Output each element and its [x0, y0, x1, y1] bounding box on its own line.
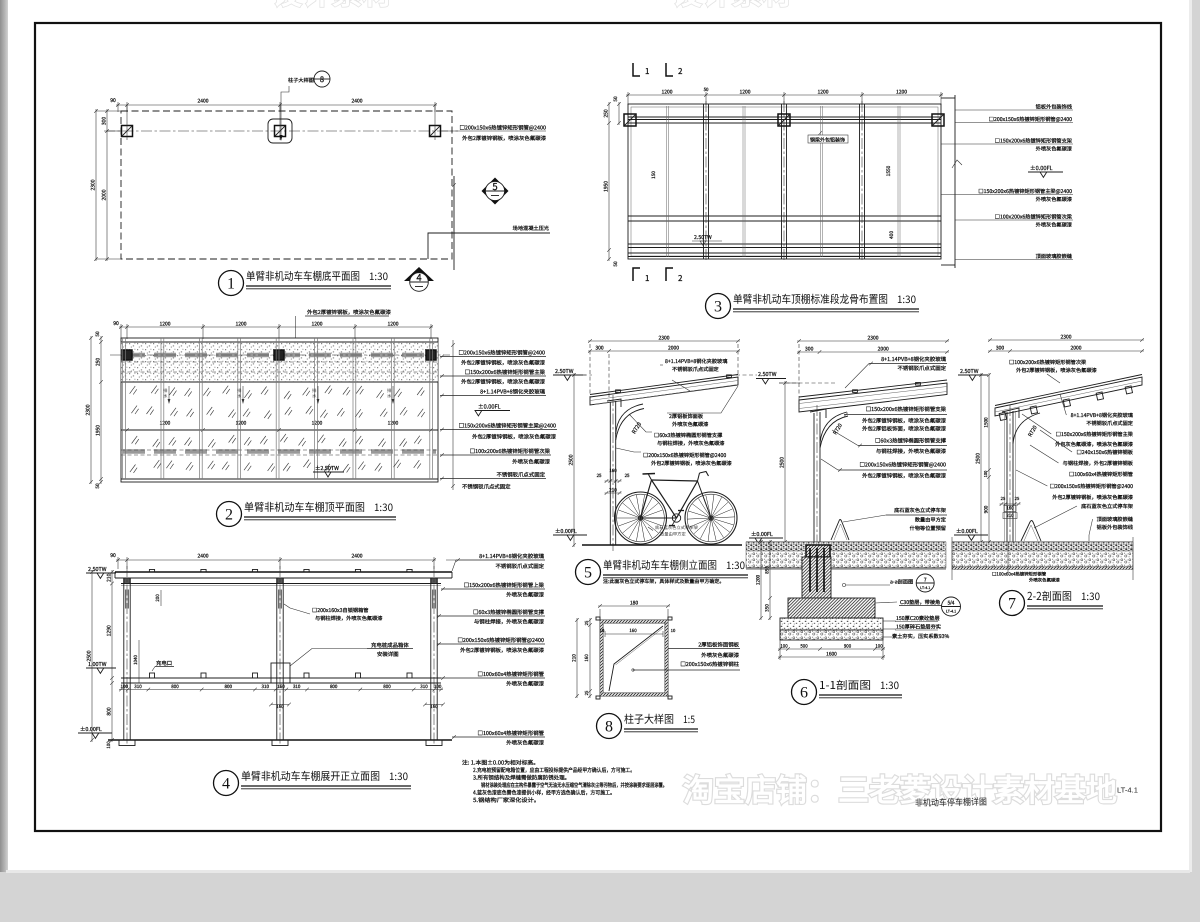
svg-text:800: 800 — [225, 684, 233, 690]
svg-text:充电桩成品箱体: 充电桩成品箱体 — [371, 641, 409, 649]
svg-text:2400: 2400 — [351, 98, 362, 105]
svg-text:25: 25 — [584, 620, 590, 625]
svg-text:7: 7 — [924, 577, 927, 584]
svg-text:外包2厚镀锌钢板，喷涂灰色氟碳漆: 外包2厚镀锌钢板，喷涂灰色氟碳漆 — [1052, 494, 1133, 501]
svg-text:310: 310 — [293, 684, 301, 690]
svg-text:2300: 2300 — [84, 404, 91, 415]
svg-text:310: 310 — [420, 684, 428, 690]
svg-text:外喷灰色氟碳漆: 外喷灰色氟碳漆 — [506, 739, 544, 747]
svg-text:50: 50 — [613, 96, 619, 102]
svg-text:不锈钢驳爪点式固定: 不锈钢驳爪点式固定 — [672, 366, 719, 373]
svg-text:210: 210 — [105, 573, 112, 582]
svg-text:1950: 1950 — [94, 425, 101, 436]
svg-text:单臂非机动车车棚顶平面图: 单臂非机动车车棚顶平面图 — [244, 499, 365, 515]
svg-text:外包2厚镀锌钢板，喷涂灰色氟碳漆: 外包2厚镀锌钢板，喷涂灰色氟碳漆 — [462, 134, 546, 142]
svg-text:160: 160 — [430, 704, 438, 710]
svg-text:□150x200x6热镀锌矩形钢管主梁@2400: □150x200x6热镀锌矩形钢管主梁@2400 — [459, 422, 556, 430]
svg-text:3: 3 — [714, 299, 722, 316]
svg-text:1: 1 — [645, 66, 649, 77]
svg-text:□200x160x3自锁钢箱管: □200x160x3自锁钢箱管 — [312, 607, 368, 614]
svg-text:1200: 1200 — [739, 88, 750, 95]
svg-text:1:30: 1:30 — [389, 768, 408, 783]
svg-text:非机动车停车棚详图: 非机动车停车棚详图 — [915, 795, 987, 809]
svg-text:2000: 2000 — [878, 345, 889, 352]
svg-text:□150x200x6热镀锌矩形钢管支架: □150x200x6热镀锌矩形钢管支架 — [995, 138, 1072, 145]
svg-text:不锈钢驳爪点式固定: 不锈钢驳爪点式固定 — [1086, 420, 1133, 427]
svg-text:与钢柱焊接，外喷灰色氟碳漆: 与钢柱焊接，外喷灰色氟碳漆 — [315, 615, 382, 622]
svg-text:150厚碎石垫层夯实: 150厚碎石垫层夯实 — [896, 624, 941, 631]
svg-text:1200: 1200 — [388, 420, 399, 427]
svg-text:柱子大样图: 柱子大样图 — [288, 77, 314, 84]
svg-text:2000: 2000 — [1070, 344, 1081, 351]
svg-text:1550: 1550 — [885, 165, 892, 176]
svg-text:外喷灰色氟碳漆: 外喷灰色氟碳漆 — [506, 591, 544, 599]
svg-text:25: 25 — [1015, 496, 1020, 502]
svg-text:160: 160 — [276, 704, 284, 710]
svg-text:□100x60x4热镀锌矩形钢管: □100x60x4热镀锌矩形钢管 — [478, 670, 545, 678]
svg-text:不锈钢驳爪点式固定: 不锈钢驳爪点式固定 — [496, 471, 545, 479]
svg-text:□150x200x6热镀锌矩形钢管主梁: □150x200x6热镀锌矩形钢管主梁 — [465, 368, 546, 376]
svg-text:2厚铝板饰面板: 2厚铝板饰面板 — [669, 413, 704, 420]
svg-text:2: 2 — [678, 66, 683, 77]
svg-text:180: 180 — [630, 599, 639, 606]
svg-text:外喷灰色氟碳漆: 外喷灰色氟碳漆 — [672, 421, 708, 428]
svg-text:单臂非机动车顶棚标准段龙骨布置图: 单臂非机动车顶棚标准段龙骨布置图 — [733, 291, 888, 307]
svg-text:□60x3热镀锌椭圆形钢管支撑: □60x3热镀锌椭圆形钢管支撑 — [473, 608, 545, 616]
svg-text:LT-4.1: LT-4.1 — [1117, 786, 1138, 795]
svg-text:150: 150 — [651, 171, 657, 179]
svg-text:数量由甲方定: 数量由甲方定 — [915, 517, 946, 524]
svg-text:不锈钢驳爪点式固定: 不锈钢驳爪点式固定 — [897, 364, 946, 372]
svg-text:6: 6 — [800, 685, 808, 702]
svg-text:与钢柱焊接，外喷灰色氟碳漆: 与钢柱焊接，外喷灰色氟碳漆 — [876, 447, 947, 455]
svg-text:2400: 2400 — [351, 553, 362, 560]
svg-text:5: 5 — [584, 565, 592, 582]
svg-text:外包2厚镀锌钢板，喷涂灰色氟碳漆: 外包2厚镀锌钢板，喷涂灰色氟碳漆 — [461, 378, 545, 386]
svg-text:1200: 1200 — [896, 88, 907, 95]
svg-text:淘宝店铺：三老菱设计素材基地: 淘宝店铺：三老菱设计素材基地 — [683, 765, 1117, 810]
svg-text:2500: 2500 — [85, 650, 92, 661]
svg-text:外包2厚镀锌钢板，喷涂灰色氟碳漆: 外包2厚镀锌钢板，喷涂灰色氟碳漆 — [461, 359, 545, 367]
svg-text:±0.00FL: ±0.00FL — [80, 725, 102, 733]
svg-text:外包2厚镀锌钢板，喷涂灰色氟碳漆: 外包2厚镀锌钢板，喷涂灰色氟碳漆 — [472, 433, 556, 441]
svg-text:1200: 1200 — [159, 320, 170, 327]
svg-text:外包灰色氟碳漆，喷涂灰色氟碳漆: 外包灰色氟碳漆，喷涂灰色氟碳漆 — [1055, 441, 1133, 448]
svg-text:1200: 1200 — [236, 420, 247, 427]
svg-text:800: 800 — [171, 684, 179, 690]
svg-text:2500: 2500 — [778, 457, 785, 468]
svg-text:□200x150x6热镀锌矩形钢管@2400: □200x150x6热镀锌矩形钢管@2400 — [458, 349, 545, 357]
svg-text:□150x200x6热镀锌矩形钢管上梁: □150x200x6热镀锌矩形钢管上梁 — [464, 581, 545, 589]
svg-text:8+1.14PVB+8钢化夹胶玻璃: 8+1.14PVB+8钢化夹胶玻璃 — [1071, 412, 1133, 419]
svg-text:与钢柱焊接，外喷灰色氟碳漆: 与钢柱焊接，外喷灰色氟碳漆 — [474, 618, 545, 626]
svg-text:25: 25 — [1001, 496, 1006, 502]
svg-text:1:30: 1:30 — [726, 557, 745, 572]
svg-text:□100x60x4热镀锌矩形钢管: □100x60x4热镀锌矩形钢管 — [1069, 471, 1133, 478]
svg-text:±0.00FL: ±0.00FL — [751, 530, 773, 538]
svg-text:底石蓝灰色立式停车架: 底石蓝灰色立式停车架 — [894, 507, 946, 514]
svg-text:C30垫层，带棱角: C30垫层，带棱角 — [900, 599, 940, 606]
svg-text:1500: 1500 — [983, 417, 989, 428]
svg-text:1200: 1200 — [817, 88, 828, 95]
svg-text:2.50TW: 2.50TW — [555, 367, 574, 375]
svg-text:□60x3热镀锌椭圆形钢管支撑: □60x3热镀锌椭圆形钢管支撑 — [654, 432, 722, 439]
svg-text:2500: 2500 — [974, 453, 981, 464]
svg-text:1:30: 1:30 — [369, 268, 388, 283]
svg-text:25: 25 — [584, 690, 590, 695]
svg-text:1:30: 1:30 — [374, 499, 393, 514]
svg-text:不锈钢驳爪点式固定: 不锈钢驳爪点式固定 — [495, 562, 544, 570]
svg-text:900: 900 — [844, 643, 852, 649]
svg-text:2.50TW: 2.50TW — [88, 565, 107, 573]
svg-text:外喷灰色氟碳漆: 外喷灰色氟碳漆 — [1036, 222, 1072, 229]
svg-text:210: 210 — [1006, 513, 1014, 519]
svg-text:±2.50TW: ±2.50TW — [315, 464, 339, 472]
svg-text:100: 100 — [121, 684, 129, 690]
svg-text:5/4: 5/4 — [948, 600, 955, 607]
svg-text:1600: 1600 — [826, 650, 837, 657]
svg-text:300: 300 — [805, 345, 814, 352]
svg-text:210: 210 — [571, 654, 577, 662]
svg-text:□200x150x6热镀锌矩形钢管@2400: □200x150x6热镀锌矩形钢管@2400 — [859, 461, 946, 469]
svg-text:50: 50 — [704, 87, 709, 93]
svg-text:铝板外包装饰线: 铝板外包装饰线 — [1036, 104, 1072, 111]
svg-text:100: 100 — [983, 470, 989, 477]
svg-text:LT-4.1: LT-4.1 — [920, 586, 930, 591]
svg-text:外喷灰色氟碳漆: 外喷灰色氟碳漆 — [506, 680, 544, 688]
svg-text:柱子大样图: 柱子大样图 — [624, 711, 674, 727]
svg-text:外包2厚镀锌钢板，喷涂灰色氟碳漆: 外包2厚镀锌钢板，喷涂灰色氟碳漆 — [1016, 367, 1097, 374]
svg-text:1:30: 1:30 — [1081, 588, 1100, 603]
svg-text:1:30: 1:30 — [880, 677, 899, 692]
svg-text:200: 200 — [155, 594, 161, 602]
svg-text:±0.00FL: ±0.00FL — [956, 527, 978, 535]
svg-text:2500: 2500 — [567, 454, 574, 465]
svg-text:1:30: 1:30 — [897, 291, 916, 306]
svg-text:160: 160 — [277, 684, 285, 690]
svg-text:充电口: 充电口 — [156, 659, 172, 667]
svg-text:250: 250 — [94, 358, 101, 367]
svg-text:单臂非机动车车棚侧立面图: 单臂非机动车车棚侧立面图 — [603, 557, 717, 573]
svg-text:2000: 2000 — [100, 189, 107, 200]
svg-text:□150x200x6热镀锌矩形钢管主梁@2400: □150x200x6热镀锌矩形钢管主梁@2400 — [978, 188, 1072, 195]
svg-text:50: 50 — [95, 483, 101, 489]
svg-text:90: 90 — [110, 552, 116, 559]
svg-text:50: 50 — [95, 331, 101, 337]
svg-text:90: 90 — [110, 97, 116, 104]
svg-text:2.50TW: 2.50TW — [960, 367, 979, 375]
svg-text:与钢柱焊接，外喷灰色氟碳漆: 与钢柱焊接，外喷灰色氟碳漆 — [657, 440, 724, 447]
svg-text:100: 100 — [780, 643, 788, 649]
svg-text:a-a剖面图: a-a剖面图 — [890, 579, 913, 586]
svg-text:300: 300 — [595, 344, 604, 351]
svg-text:1:5: 1:5 — [683, 711, 695, 726]
svg-text:1290: 1290 — [105, 625, 112, 636]
svg-text:800: 800 — [330, 684, 338, 690]
svg-text:注:此面灰色立式停车架，具体样式及数量由甲方确定。: 注:此面灰色立式停车架，具体样式及数量由甲方确定。 — [603, 578, 724, 585]
svg-text:□240x150x6热镀锌钢板: □240x150x6热镀锌钢板 — [1077, 449, 1134, 456]
svg-text:2400: 2400 — [197, 98, 208, 105]
svg-text:±0.00FL: ±0.00FL — [555, 527, 577, 535]
svg-text:单臂非机动车车棚底平面图: 单臂非机动车车棚底平面图 — [246, 268, 360, 284]
svg-text:25: 25 — [597, 473, 602, 479]
svg-text:1200: 1200 — [387, 320, 398, 327]
svg-text:900: 900 — [983, 505, 989, 513]
svg-text:设计素材: 设计素材 — [272, 0, 392, 13]
svg-text:310: 310 — [262, 684, 270, 690]
svg-text:210: 210 — [609, 487, 617, 493]
svg-text:350: 350 — [764, 604, 770, 612]
svg-text:水: 水 — [387, 394, 392, 400]
svg-text:铝板外包装饰线: 铝板外包装饰线 — [1097, 524, 1133, 531]
svg-text:400: 400 — [888, 231, 895, 239]
svg-text:1040: 1040 — [133, 655, 139, 665]
svg-text:□200x150x6热镀锌矩形钢管@2400: □200x150x6热镀锌矩形钢管@2400 — [989, 116, 1072, 123]
svg-text:水: 水 — [237, 394, 242, 400]
svg-text:300: 300 — [100, 117, 107, 126]
svg-text:7: 7 — [1008, 596, 1016, 613]
svg-text:1-1剖面图: 1-1剖面图 — [819, 677, 871, 693]
svg-text:300: 300 — [996, 344, 1005, 351]
svg-text:160: 160 — [609, 468, 617, 474]
svg-text:水: 水 — [312, 394, 317, 400]
svg-text:素土夯实，压实系数93%: 素土夯实，压实系数93% — [892, 633, 949, 640]
svg-text:2400: 2400 — [197, 553, 208, 560]
svg-text:外包2厚镀锌钢板，喷涂灰色氟碳漆: 外包2厚镀锌钢板，喷涂灰色氟碳漆 — [651, 460, 732, 467]
svg-text:160: 160 — [584, 654, 590, 662]
svg-text:±0.00FL: ±0.00FL — [1030, 164, 1053, 172]
svg-text:□150x200x6热镀锌矩形钢管主梁: □150x200x6热镀锌矩形钢管主梁 — [1056, 431, 1133, 438]
svg-text:外包2厚镀锌钢板，喷涂灰色氟碳漆: 外包2厚镀锌钢板，喷涂灰色氟碳漆 — [460, 646, 544, 654]
svg-text:□100x200x6热镀锌矩形钢管次梁: □100x200x6热镀锌矩形钢管次梁 — [470, 447, 551, 455]
svg-text:外喷灰色氟碳漆: 外喷灰色氟碳漆 — [512, 458, 550, 466]
svg-text:2-2剖面图: 2-2剖面图 — [1027, 588, 1072, 604]
svg-text:2.50TW: 2.50TW — [694, 234, 712, 241]
svg-text:850: 850 — [764, 566, 770, 574]
svg-text:底石蓝灰色立式停车架: 底石蓝灰色立式停车架 — [655, 525, 699, 531]
svg-text:±0.00FL: ±0.00FL — [478, 403, 501, 411]
svg-text:安装详图: 安装详图 — [377, 650, 399, 658]
svg-text:外喷灰色氟碳漆: 外喷灰色氟碳漆 — [1036, 196, 1072, 203]
svg-text:2: 2 — [678, 273, 683, 284]
svg-text:8: 8 — [320, 74, 324, 85]
svg-text:2300: 2300 — [658, 334, 669, 341]
svg-text:2: 2 — [225, 507, 233, 524]
svg-text:钢梁外包铝装饰: 钢梁外包铝装饰 — [810, 137, 845, 144]
svg-text:8+1.14PVB+8钢化夹胶玻璃: 8+1.14PVB+8钢化夹胶玻璃 — [480, 388, 545, 396]
svg-text:□100x200x6热镀锌矩形钢管次梁: □100x200x6热镀锌矩形钢管次梁 — [1009, 359, 1086, 366]
svg-text:顶面玻璃胶嵌缝: 顶面玻璃胶嵌缝 — [1036, 253, 1072, 260]
svg-text:250: 250 — [602, 109, 609, 118]
svg-text:800: 800 — [105, 707, 112, 716]
svg-text:不锈钢驳爪点式固定: 不锈钢驳爪点式固定 — [462, 483, 511, 491]
svg-text:50: 50 — [613, 261, 619, 267]
svg-text:单臂非机动车车棚展开正立面图: 单臂非机动车车棚展开正立面图 — [241, 768, 380, 784]
svg-text:什物等位置预留: 什物等位置预留 — [910, 525, 946, 532]
svg-text:LT-4.1: LT-4.1 — [946, 610, 956, 615]
svg-text:1: 1 — [645, 273, 649, 284]
svg-text:100: 100 — [875, 643, 883, 649]
svg-text:800: 800 — [383, 684, 391, 690]
svg-text:□200x150x6热镀锌矩形钢管@2400: □200x150x6热镀锌矩形钢管@2400 — [457, 636, 544, 644]
svg-text:外喷灰色氟碳漆: 外喷灰色氟碳漆 — [1029, 578, 1060, 584]
svg-text:2厚铝板饰面钢板: 2厚铝板饰面钢板 — [698, 641, 739, 649]
svg-text:150厚C20素砼垫层: 150厚C20素砼垫层 — [896, 615, 940, 622]
svg-text:160: 160 — [1006, 506, 1014, 512]
svg-text:1200: 1200 — [661, 88, 672, 95]
svg-text:□200x150x6热镀锌矩形钢管@2400: □200x150x6热镀锌矩形钢管@2400 — [643, 452, 726, 459]
svg-text:8: 8 — [605, 719, 613, 736]
svg-text:□200x150x6热镀锌矩形钢管@2400: □200x150x6热镀锌矩形钢管@2400 — [459, 124, 546, 132]
svg-text:□60x3热镀锌椭圆形钢管支撑: □60x3热镀锌椭圆形钢管支撑 — [875, 437, 947, 445]
svg-text:90: 90 — [113, 320, 119, 327]
svg-text:外包2厚铝板饰面，喷涂灰色氟碳漆: 外包2厚铝板饰面，喷涂灰色氟碳漆 — [862, 425, 946, 433]
svg-text:1200: 1200 — [235, 320, 246, 327]
svg-text:8+1.14PVB+8钢化夹胶玻璃: 8+1.14PVB+8钢化夹胶玻璃 — [881, 355, 946, 363]
svg-text:外喷灰色氟碳漆: 外喷灰色氟碳漆 — [701, 651, 739, 659]
svg-text:5.钢结构厂家深化设计。: 5.钢结构厂家深化设计。 — [473, 796, 540, 804]
svg-text:2300: 2300 — [867, 334, 878, 341]
svg-text:□200x150x6热镀锌矩形钢管@2400: □200x150x6热镀锌矩形钢管@2400 — [1050, 483, 1133, 490]
svg-text:10: 10 — [600, 628, 605, 634]
svg-text:□200x150x6热镀锌钢柱: □200x150x6热镀锌钢柱 — [680, 660, 739, 668]
svg-text:160: 160 — [629, 628, 637, 634]
svg-text:场地混凝土压光: 场地混凝土压光 — [513, 225, 549, 232]
svg-text:8+1.14PVB+8钢化夹胶玻璃: 8+1.14PVB+8钢化夹胶玻璃 — [665, 358, 727, 365]
svg-text:外包2厚镀锌钢板，喷涂灰色氟碳漆: 外包2厚镀锌钢板，喷涂灰色氟碳漆 — [862, 472, 946, 480]
svg-text:2300: 2300 — [1060, 333, 1071, 340]
svg-text:8+1.14PVB+8钢化夹胶玻璃: 8+1.14PVB+8钢化夹胶玻璃 — [479, 552, 544, 560]
svg-text:数量由甲方定: 数量由甲方定 — [660, 532, 686, 538]
svg-text:1200: 1200 — [755, 574, 761, 585]
svg-text:□100x200x6热镀锌矩形钢管次梁: □100x200x6热镀锌矩形钢管次梁 — [995, 214, 1072, 221]
svg-text:2300: 2300 — [89, 179, 96, 190]
svg-text:1: 1 — [227, 276, 235, 293]
svg-text:□100x60x4热镀锌矩形钢管: □100x60x4热镀锌矩形钢管 — [478, 729, 545, 737]
svg-text:10: 10 — [671, 628, 676, 634]
svg-text:水: 水 — [163, 394, 168, 400]
svg-text:设计素材: 设计素材 — [672, 0, 792, 13]
svg-text:1200: 1200 — [311, 320, 322, 327]
svg-text:外喷灰色氟碳漆: 外喷灰色氟碳漆 — [1036, 146, 1072, 153]
svg-text:100: 100 — [434, 684, 442, 690]
svg-text:4: 4 — [222, 776, 230, 793]
svg-text:500: 500 — [800, 643, 808, 649]
svg-text:25: 25 — [625, 473, 630, 479]
svg-text:2000: 2000 — [668, 344, 679, 351]
svg-text:与钢柱焊接，外包2厚镀锌钢板: 与钢柱焊接，外包2厚镀锌钢板 — [1063, 460, 1134, 467]
svg-text:外包2厚镀锌钢板，喷涂灰色氟碳漆: 外包2厚镀锌钢板，喷涂灰色氟碳漆 — [862, 417, 946, 425]
svg-text:100: 100 — [106, 741, 112, 749]
svg-text:□150x200x6热镀锌矩形钢管支梁: □150x200x6热镀锌矩形钢管支梁 — [866, 405, 947, 413]
svg-text:顶面玻璃胶嵌缝: 顶面玻璃胶嵌缝 — [1097, 516, 1133, 523]
svg-text:310: 310 — [134, 684, 142, 690]
svg-text:2.50TW: 2.50TW — [758, 370, 777, 378]
svg-text:外包2厚镀锌钢板，喷涂灰色氟碳漆: 外包2厚镀锌钢板，喷涂灰色氟碳漆 — [307, 308, 391, 316]
svg-text:1950: 1950 — [602, 181, 609, 192]
svg-text:底石蓝灰色立式停车架: 底石蓝灰色立式停车架 — [1081, 503, 1133, 510]
